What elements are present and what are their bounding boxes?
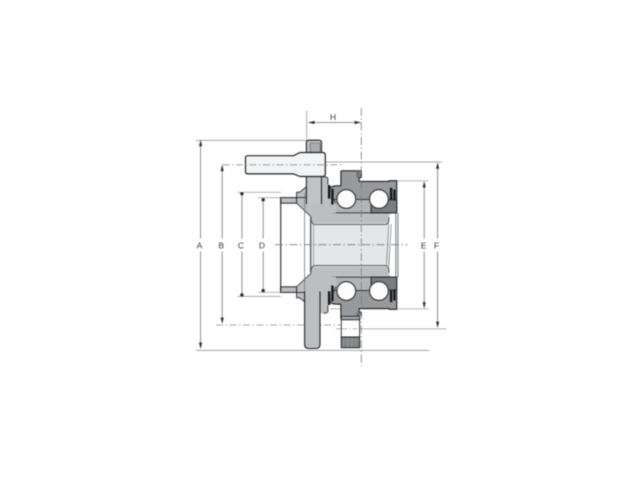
svg-text:H: H [330, 112, 336, 122]
svg-text:F: F [434, 240, 439, 250]
svg-text:D: D [259, 240, 265, 250]
svg-text:B: B [218, 240, 224, 250]
svg-text:A: A [197, 240, 203, 250]
svg-text:C: C [238, 240, 244, 250]
svg-text:E: E [421, 240, 427, 250]
